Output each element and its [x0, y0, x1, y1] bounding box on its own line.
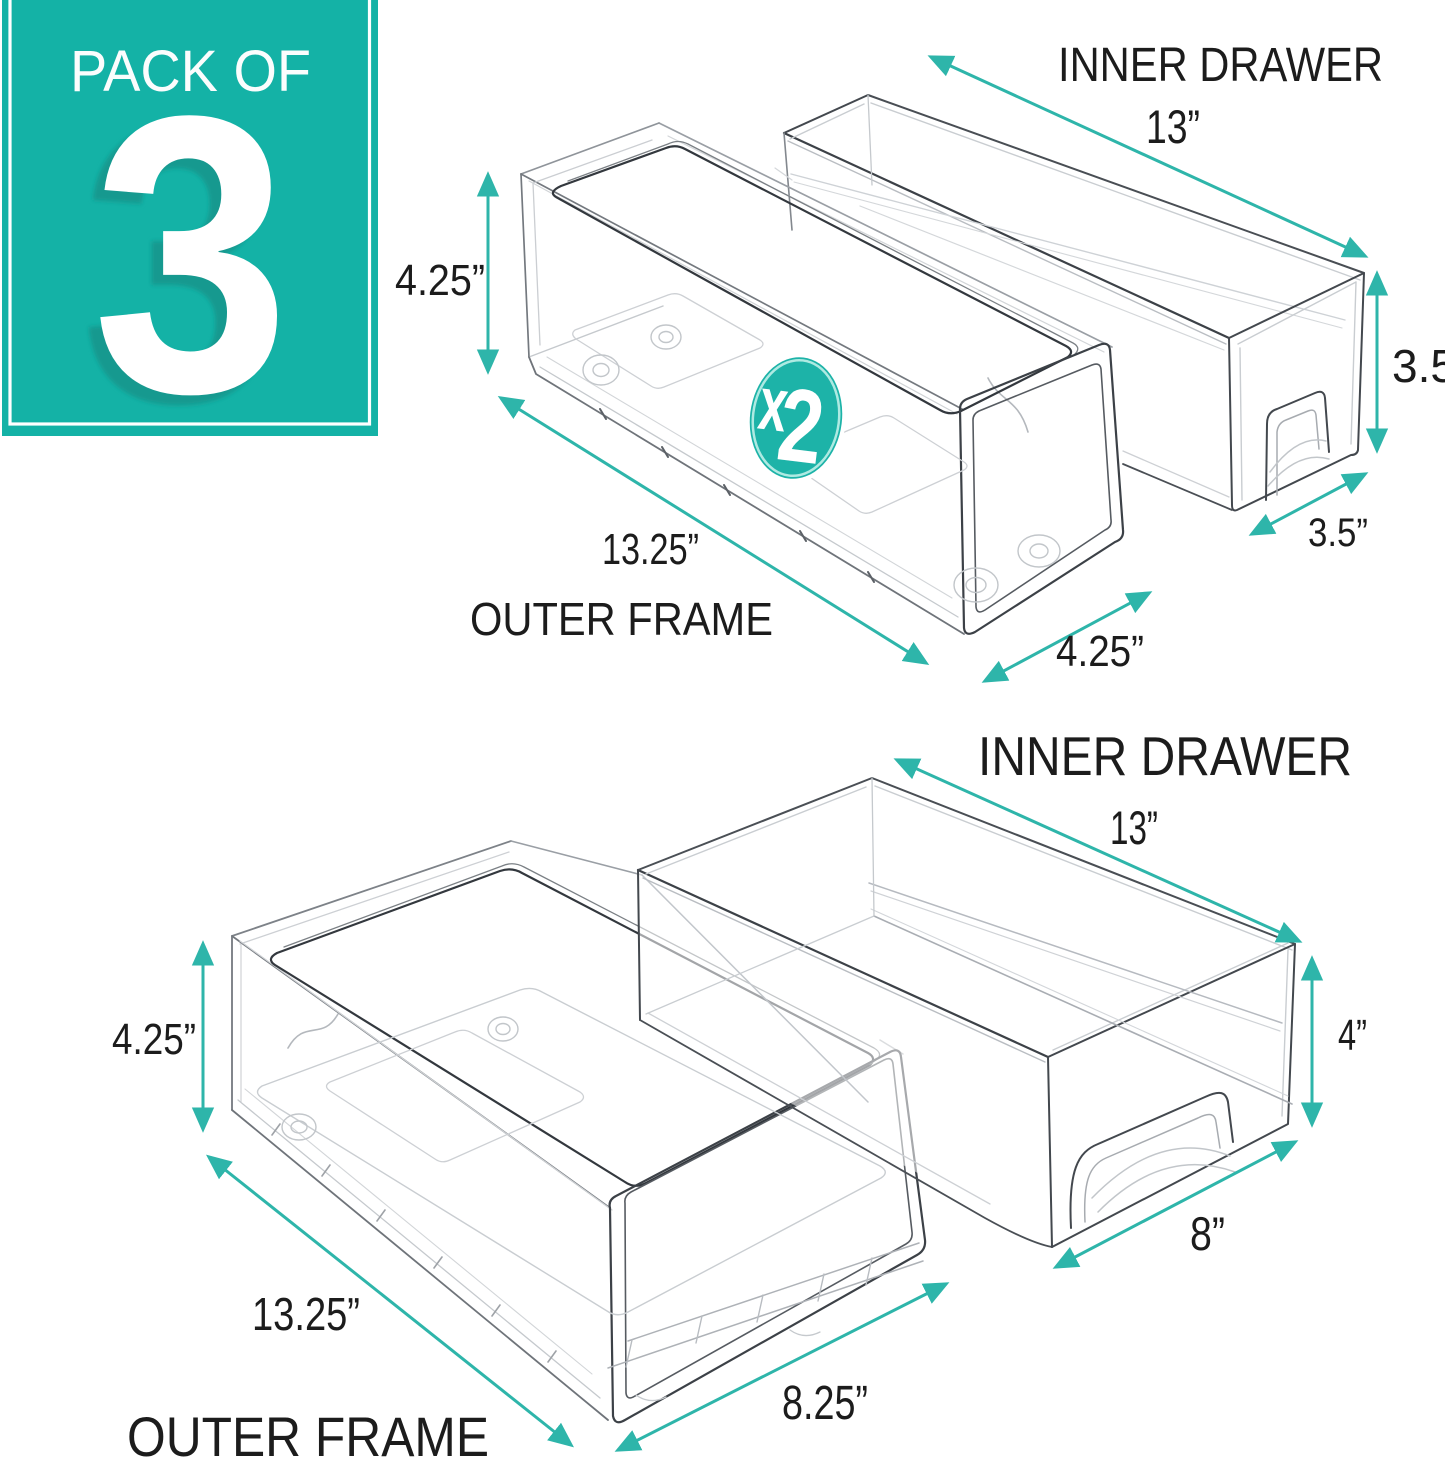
svg-text:4”: 4” — [1338, 1011, 1367, 1060]
svg-text:3.5”: 3.5” — [1392, 340, 1445, 392]
svg-text:4.25”: 4.25” — [395, 256, 485, 305]
svg-text:3.5”: 3.5” — [1308, 511, 1368, 555]
svg-text:OUTER FRAME: OUTER FRAME — [470, 593, 773, 645]
svg-text:13.25”: 13.25” — [602, 525, 699, 574]
svg-text:OUTER FRAME: OUTER FRAME — [127, 1405, 489, 1458]
svg-text:3: 3 — [92, 34, 290, 475]
svg-text:INNER DRAWER: INNER DRAWER — [1058, 39, 1383, 92]
svg-text:8.25”: 8.25” — [782, 1377, 868, 1430]
svg-text:8”: 8” — [1190, 1207, 1225, 1260]
svg-text:INNER DRAWER: INNER DRAWER — [978, 725, 1352, 787]
svg-text:4.25”: 4.25” — [112, 1015, 196, 1064]
svg-text:13.25”: 13.25” — [252, 1288, 360, 1340]
svg-text:4.25”: 4.25” — [1056, 627, 1144, 676]
svg-text:13”: 13” — [1146, 100, 1200, 153]
svg-text:13”: 13” — [1110, 801, 1158, 854]
